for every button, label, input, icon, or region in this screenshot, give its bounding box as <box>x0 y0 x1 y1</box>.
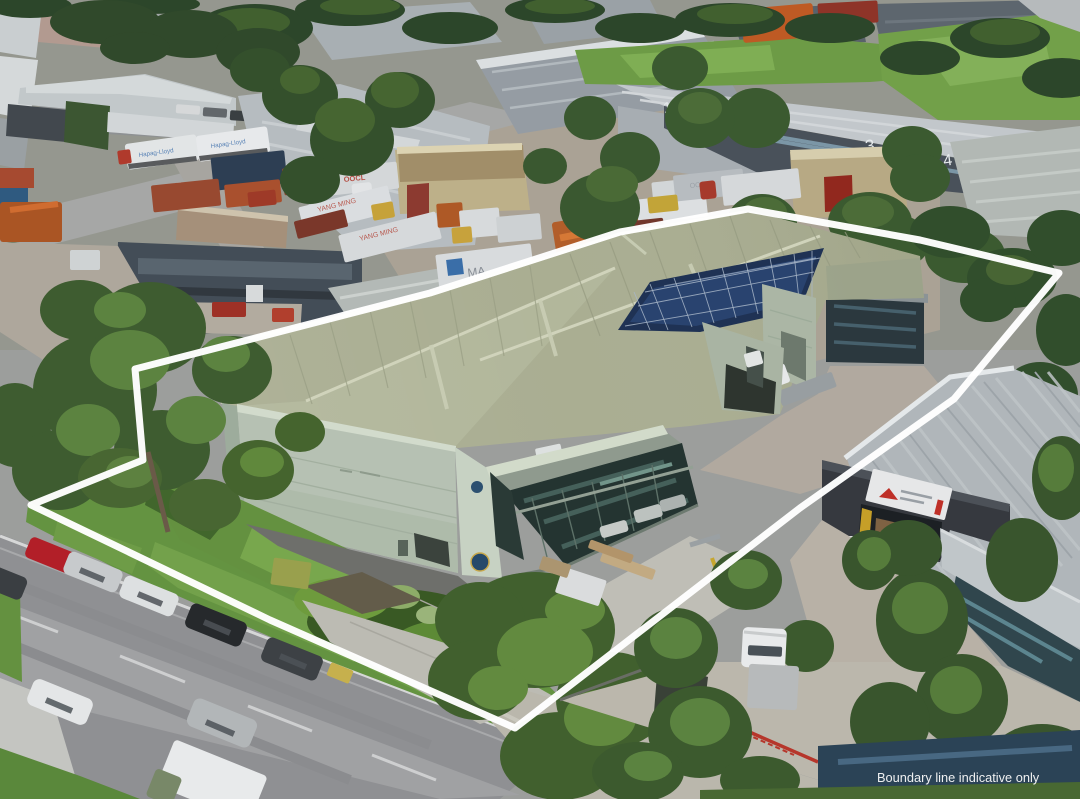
svg-text:Boundary line indicative only: Boundary line indicative only <box>877 770 1040 785</box>
